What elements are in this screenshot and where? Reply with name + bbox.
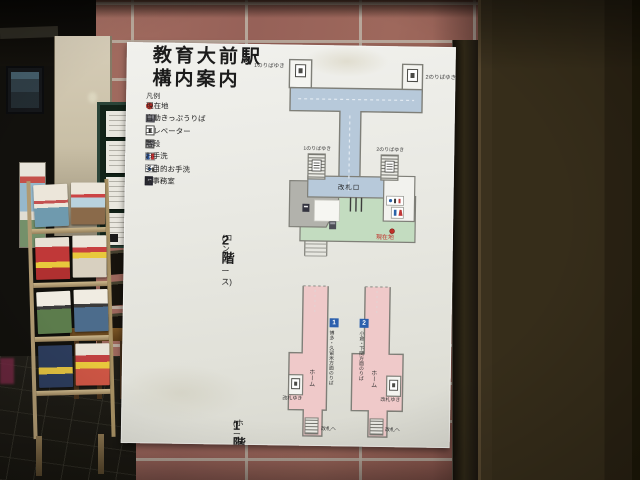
leaflet: [36, 291, 72, 334]
leaflet: [33, 184, 69, 227]
rack-rail: [36, 389, 110, 396]
floor1-map: [288, 286, 404, 438]
steps-down: [305, 241, 327, 256]
rack-rail: [32, 227, 106, 234]
rack-leg: [36, 436, 42, 476]
door-frame: [452, 40, 478, 480]
stairs-right-label: 2のりばゆき: [376, 148, 404, 153]
legend-item: 駅事務室: [145, 175, 235, 189]
station-office-icon: [302, 204, 309, 212]
leaflet: [75, 343, 109, 385]
ticket-gate-label: 改札口: [338, 185, 361, 192]
office-window: [314, 200, 339, 221]
floor2-sub: (コンコース): [221, 233, 233, 288]
legend-label: 階段: [145, 138, 160, 149]
platform1-stairs-note: 改札へ: [321, 427, 336, 432]
sign-title-line2: 構内案内: [152, 69, 240, 89]
platform1-elevator-note: 改札ゆき: [282, 396, 302, 401]
platform1-home-label: ホーム: [307, 369, 313, 395]
legend-label: お手洗: [145, 150, 168, 161]
display-screen: [11, 72, 39, 108]
platform2-home-label: ホーム: [369, 370, 375, 396]
brown-door: [478, 0, 640, 480]
current-location-label: 現在地: [376, 235, 394, 241]
platform1-stairs: [305, 418, 318, 434]
elevator-icon: [295, 65, 417, 82]
stairs-left-label: 1のりばゆき: [303, 147, 331, 152]
station-map-sign: 教育大前駅 構内案内 凡例 現在地 自動きっぷうりば エレベーター 階段 お手洗…: [121, 42, 456, 448]
accessible-restroom-icon: [386, 196, 403, 205]
legend-label: エレベーター: [146, 125, 191, 137]
overpass-left-destination-label: 1のりばゆき: [227, 64, 285, 70]
leaflet: [73, 289, 108, 332]
light-reflection: [88, 92, 97, 103]
rack-leg: [98, 434, 104, 474]
legend-label: 駅事務室: [145, 176, 175, 187]
leaflet: [72, 235, 106, 277]
leaflet-rack: [26, 179, 115, 439]
platform2-stairs-note: 改札へ: [385, 428, 400, 433]
leaflet: [71, 182, 105, 224]
overpass-right-destination-label: 2のりばゆき: [425, 76, 456, 82]
background-object: [0, 358, 14, 384]
platform2-number-badge: 2: [360, 319, 369, 328]
platform2-stairs: [370, 419, 383, 435]
platform1-number-badge: 1: [330, 318, 339, 327]
info-display: [6, 66, 44, 114]
legend-label: 自動きっぷうりば: [146, 113, 206, 125]
station-entrance-photo: 教育大前駅 構内案内 凡例 現在地 自動きっぷうりば エレベーター 階段 お手洗…: [0, 0, 640, 480]
ceiling-beam: [0, 26, 58, 39]
legend-label: 現在地: [146, 100, 169, 111]
leaflet: [38, 345, 73, 388]
current-location-dot: [390, 229, 395, 234]
platform2-elevator-note: 改札ゆき: [380, 398, 400, 403]
floor1-sub: (ホーム): [233, 418, 244, 448]
rack-rail: [33, 281, 107, 288]
legend: 現在地 自動きっぷうりば エレベーター 階段 お手洗 多目的お手洗 駅事務室: [145, 99, 236, 189]
leaflet: [35, 237, 70, 280]
rack-rail: [35, 335, 109, 342]
qr-code: [110, 234, 118, 242]
floor2-map: [287, 60, 423, 258]
ticket-machine-icon: [329, 221, 336, 229]
legend-label: 多目的お手洗: [145, 163, 190, 175]
restroom-icon: [391, 207, 403, 218]
